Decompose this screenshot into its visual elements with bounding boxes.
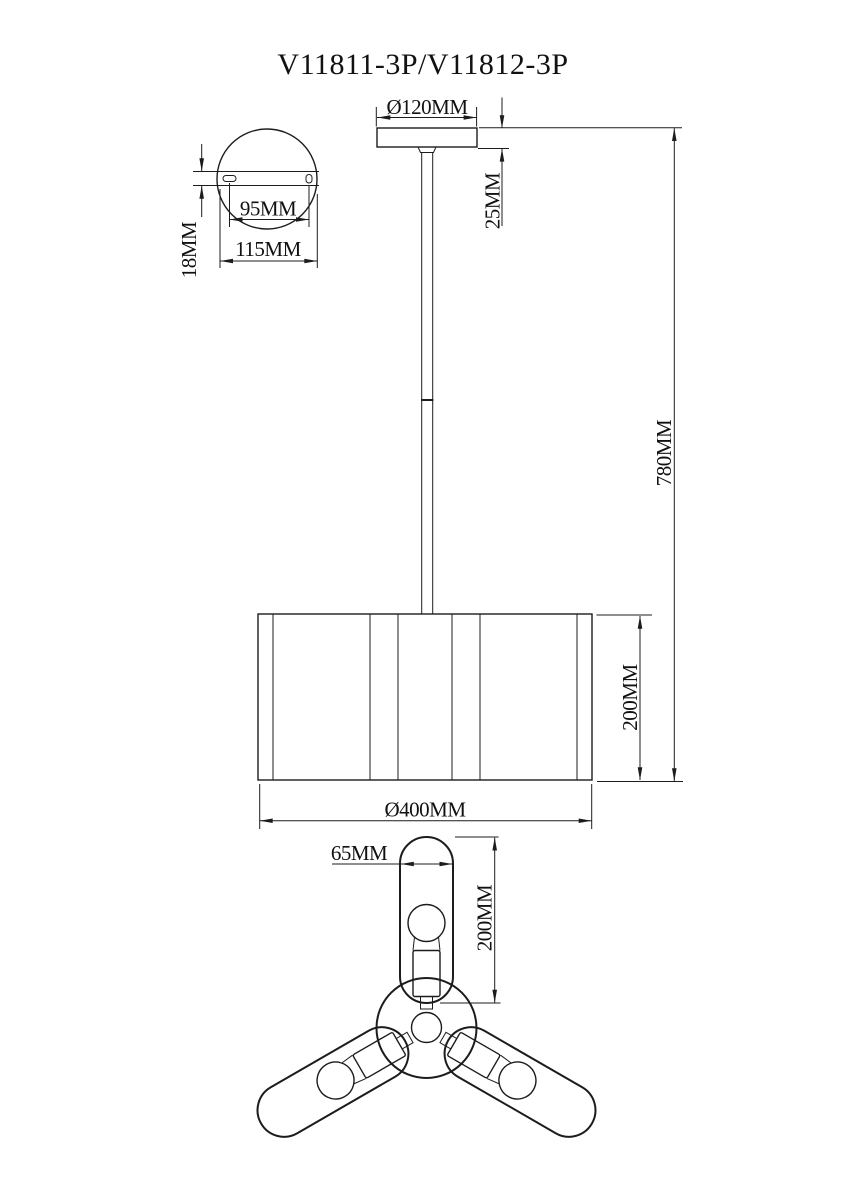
bulb-neck-line [439,937,441,951]
arrowhead [492,990,497,1003]
page-title: V11811-3P/V11812-3P [277,48,568,81]
dim-label-canopy-diameter: Ø120MM [386,95,468,119]
dim-label-shade-height: 200MM [618,664,642,731]
dim-hole-spacing: 95MM [230,183,310,227]
dim-arm-width: 65MM [331,841,453,866]
arrowhead [304,259,317,263]
lamp-socket [413,951,440,997]
arrowhead [672,768,677,781]
arrowhead [579,819,592,824]
bottom-view [248,837,605,1146]
dim-label-plate-thickness: 18MM [177,221,201,278]
dim-shade-height: 200MM [597,615,653,780]
dim-canopy-height: 25MM [478,98,509,230]
dim-overall-height: 780MM [479,128,683,782]
arrowhead [296,217,309,221]
pendant-lamp-technical-drawing: V11811-3P/V11812-3P 18MM 95MM [0,0,848,1200]
bulb-neck-line [413,937,415,951]
arrowhead [401,862,414,866]
canopy-side-view [377,128,477,153]
drawing-page: V11811-3P/V11812-3P 18MM 95MM [0,0,848,1200]
arrowhead [492,838,497,851]
arrowhead [638,767,643,780]
dim-label-overall-height: 780MM [652,419,676,486]
arrowhead [199,158,204,171]
bulb-globe [408,905,445,942]
rod-collar [418,147,436,153]
arrowhead [199,186,204,199]
shade-body [258,614,592,780]
arrowhead [440,862,453,866]
dim-plate-thickness: 18MM [177,144,204,278]
dim-label-shade-diameter: Ø400MM [384,798,466,822]
mount-slot-left [223,176,236,182]
dim-label-canopy-height: 25MM [481,172,505,229]
hub-center-finial [412,1013,442,1043]
dim-arm-length: 200MM [440,837,501,1003]
dim-label-hole-spacing: 95MM [240,197,297,221]
dim-label-arm-width: 65MM [331,841,388,865]
arrowhead [672,128,677,141]
mount-hole-right [306,175,312,184]
arrowhead [500,149,505,162]
arrowhead [220,259,233,263]
dim-canopy-diameter: Ø120MM [376,95,477,127]
dim-label-arm-length: 200MM [473,884,497,951]
arrowhead [260,819,273,824]
drum-shade [258,614,592,780]
arrowhead [500,115,505,128]
dim-label-plate-width: 115MM [235,237,301,261]
canopy-body [377,128,477,147]
hanging-rod [421,153,433,615]
lamp-arm-right [430,1015,605,1147]
lamp-arm-left [248,1015,423,1147]
dim-shade-diameter: Ø400MM [260,784,592,829]
arrowhead [638,616,643,629]
